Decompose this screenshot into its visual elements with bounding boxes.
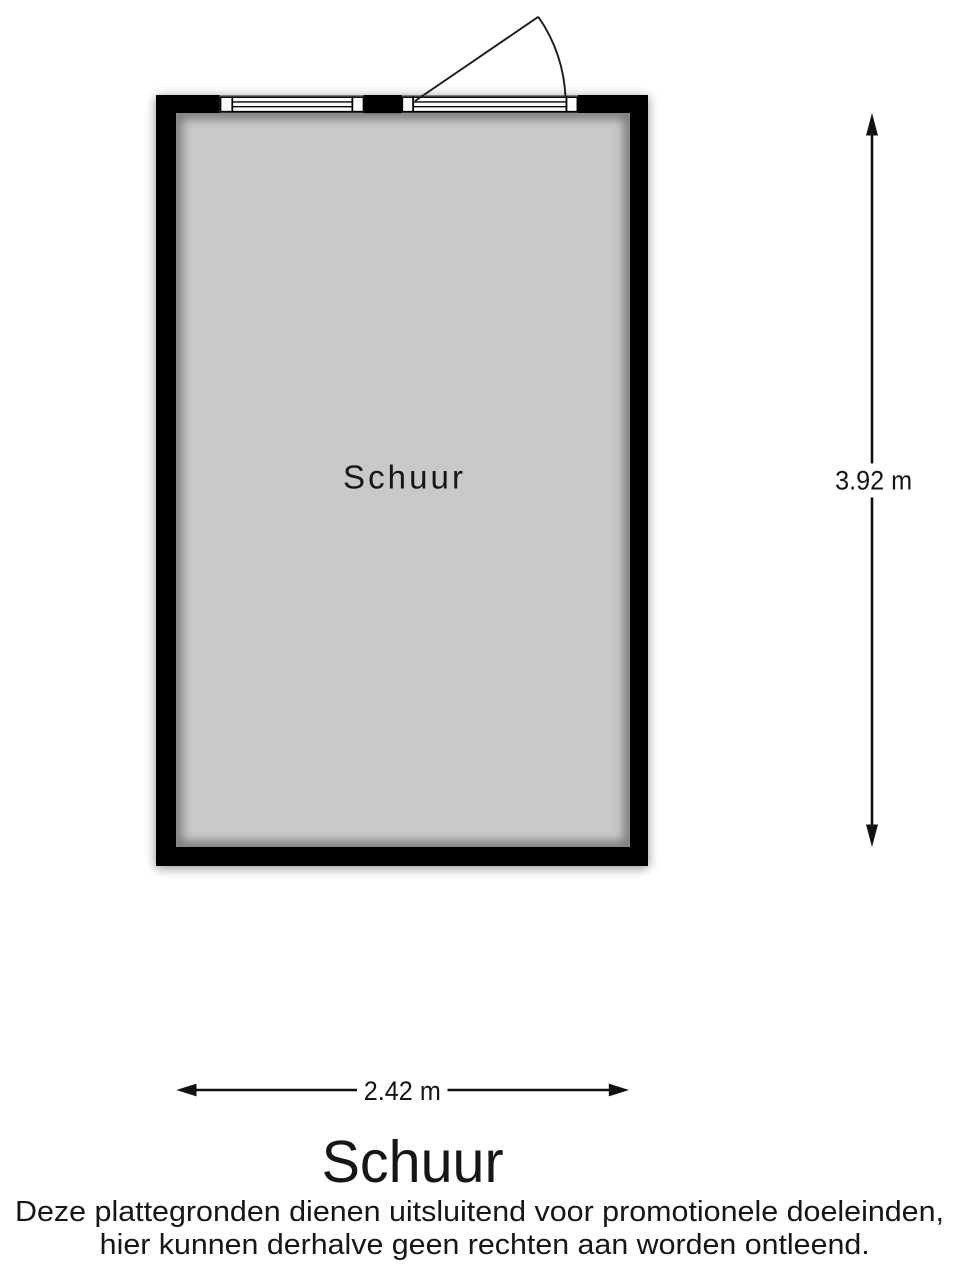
svg-text:3.92 m: 3.92 m [835, 466, 912, 496]
svg-text:Deze plattegronden dienen uits: Deze plattegronden dienen uitsluitend vo… [15, 1196, 944, 1228]
svg-text:2.42 m: 2.42 m [364, 1076, 441, 1106]
svg-text:Schuur: Schuur [322, 1129, 504, 1195]
svg-text:Schuur: Schuur [343, 459, 463, 496]
svg-text:hier kunnen derhalve geen rech: hier kunnen derhalve geen rechten aan wo… [100, 1229, 870, 1261]
